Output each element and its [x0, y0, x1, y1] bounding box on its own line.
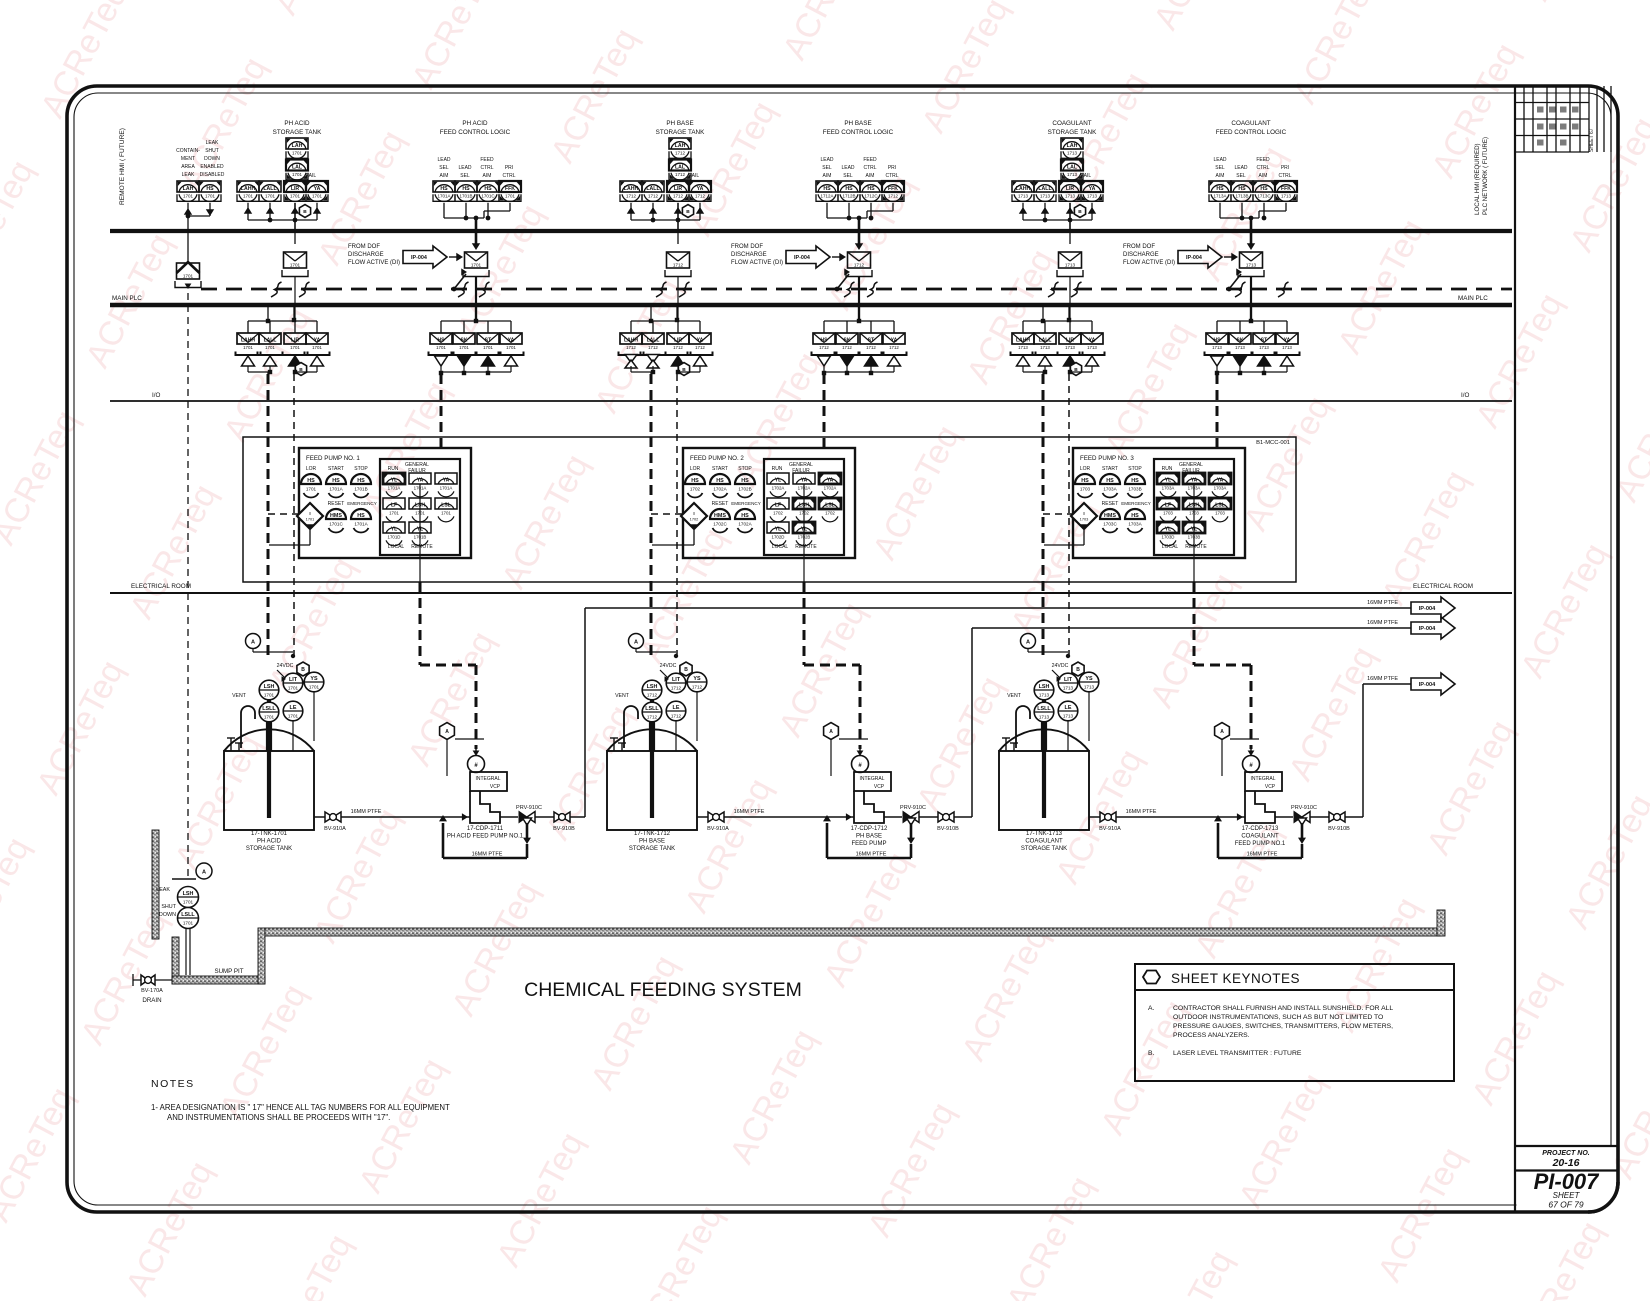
svg-text:1701: 1701	[264, 693, 275, 698]
svg-text:HS: HS	[1106, 478, 1114, 484]
svg-text:1701: 1701	[505, 194, 516, 199]
svg-text:YA: YA	[1191, 478, 1198, 484]
svg-text:FEED: FEED	[1256, 157, 1270, 163]
svg-text:EMERGENCY: EMERGENCY	[347, 501, 377, 506]
svg-text:1701A: 1701A	[437, 194, 450, 199]
svg-text:RUN: RUN	[772, 466, 783, 472]
svg-text:1713: 1713	[1087, 194, 1098, 199]
svg-text:LAHH: LAHH	[1016, 338, 1030, 344]
svg-text:1703D: 1703D	[1162, 534, 1175, 539]
svg-text:1703: 1703	[1163, 510, 1173, 515]
svg-text:LALL: LALL	[263, 186, 277, 192]
svg-text:HS: HS	[716, 478, 724, 484]
svg-text:LSLL: LSLL	[1037, 706, 1051, 712]
svg-text:1701: 1701	[436, 345, 446, 350]
svg-text:1701: 1701	[265, 194, 276, 199]
svg-text:YA: YA	[1089, 186, 1096, 192]
svg-text:LSH: LSH	[264, 684, 275, 690]
svg-text:IP-004: IP-004	[411, 255, 427, 261]
svg-text:A.: A.	[1148, 1005, 1155, 1012]
svg-text:START: START	[712, 466, 728, 472]
svg-text:HS: HS	[1260, 186, 1268, 192]
svg-text:LE: LE	[290, 705, 297, 711]
svg-text:RUN: RUN	[388, 466, 399, 472]
svg-text:SK: SK	[844, 338, 851, 344]
svg-text:LAH: LAH	[675, 143, 686, 149]
svg-text:START: START	[1102, 466, 1118, 472]
svg-text:1701: 1701	[205, 194, 216, 199]
svg-text:RUN: RUN	[1162, 466, 1173, 472]
svg-text:HS: HS	[438, 338, 446, 344]
svg-text:HS: HS	[206, 186, 214, 192]
svg-text:LSL: LSL	[1215, 503, 1224, 509]
svg-text:1702A: 1702A	[824, 485, 837, 490]
svg-text:YA: YA	[697, 338, 704, 344]
svg-text:LAH: LAH	[292, 143, 303, 149]
svg-text:PH ACID: PH ACID	[257, 839, 282, 845]
svg-text:A: A	[634, 640, 638, 646]
svg-text:1713: 1713	[1065, 194, 1076, 199]
svg-text:FEED CONTROL LOGIC: FEED CONTROL LOGIC	[440, 129, 511, 136]
svg-text:VENT: VENT	[615, 693, 630, 699]
svg-text:LAHH: LAHH	[1016, 186, 1031, 192]
svg-text:1701: 1701	[243, 345, 253, 350]
svg-text:HS: HS	[1131, 513, 1139, 519]
svg-text:LIR: LIR	[291, 338, 299, 344]
svg-text:1703A: 1703A	[1103, 487, 1117, 492]
svg-text:HS: HS	[821, 338, 829, 344]
svg-text:SEL: SEL	[843, 173, 853, 179]
svg-text:1712: 1712	[888, 194, 899, 199]
svg-text:LALL: LALL	[646, 186, 660, 192]
svg-text:LEAD: LEAD	[820, 157, 833, 163]
svg-text:A: A	[202, 870, 206, 876]
svg-text:B.: B.	[1148, 1050, 1155, 1057]
svg-text:LALL: LALL	[1039, 338, 1052, 344]
svg-text:1712: 1712	[648, 345, 658, 350]
svg-text:1701: 1701	[290, 262, 301, 267]
svg-text:I: I	[309, 511, 310, 516]
svg-text:YL: YL	[1165, 527, 1171, 533]
svg-text:FFK: FFK	[1281, 186, 1291, 192]
svg-text:HS: HS	[741, 513, 749, 519]
svg-text:1713: 1713	[1018, 194, 1029, 199]
svg-text:1712: 1712	[671, 686, 682, 691]
svg-text:BV-910A: BV-910A	[707, 826, 729, 832]
svg-text:VENT: VENT	[1007, 693, 1022, 699]
svg-text:STOP: STOP	[354, 466, 368, 472]
svg-text:CTRL: CTRL	[502, 173, 515, 179]
svg-text:PLC NETWORK ( FUTURE): PLC NETWORK ( FUTURE)	[1482, 137, 1489, 215]
svg-text:1713: 1713	[1259, 345, 1269, 350]
svg-text:1713: 1713	[1246, 262, 1257, 267]
svg-text:STOP: STOP	[738, 466, 752, 472]
svg-text:1701: 1701	[264, 715, 275, 720]
svg-text:FAIL: FAIL	[306, 173, 317, 179]
svg-text:1701: 1701	[243, 194, 254, 199]
svg-text:IP-004: IP-004	[794, 255, 810, 261]
svg-text:CTRL: CTRL	[1278, 173, 1291, 179]
svg-text:RESET: RESET	[1102, 501, 1119, 507]
svg-text:INTEGRAL: INTEGRAL	[475, 776, 500, 782]
svg-text:1712: 1712	[673, 345, 683, 350]
svg-text:1713: 1713	[1018, 345, 1028, 350]
svg-text:1701: 1701	[306, 517, 315, 522]
svg-text:LALL: LALL	[264, 338, 277, 344]
svg-text:PROJECT NO.: PROJECT NO.	[1542, 1150, 1590, 1157]
svg-text:HS: HS	[691, 478, 699, 484]
svg-text:LAHH: LAHH	[241, 186, 256, 192]
svg-text:I/O: I/O	[152, 392, 160, 399]
svg-text:B1-MCC-001: B1-MCC-001	[1256, 440, 1290, 446]
svg-text:PRI: PRI	[1281, 165, 1289, 171]
svg-text:1703: 1703	[1080, 487, 1091, 492]
svg-text:1713: 1713	[1087, 345, 1097, 350]
svg-text:1702: 1702	[773, 510, 783, 515]
svg-text:FEED CONTROL LOGIC: FEED CONTROL LOGIC	[823, 129, 894, 136]
svg-text:YA: YA	[443, 478, 450, 484]
svg-text:1701: 1701	[306, 487, 317, 492]
svg-text:VCP: VCP	[490, 784, 501, 790]
svg-text:1703: 1703	[1215, 510, 1225, 515]
svg-text:1703B: 1703B	[1128, 487, 1141, 492]
svg-text:1701: 1701	[183, 900, 194, 905]
svg-text:LSH: LSH	[183, 891, 194, 897]
svg-text:IP-004: IP-004	[1419, 682, 1436, 688]
svg-text:ST: ST	[1261, 338, 1267, 344]
svg-text:HS: HS	[867, 186, 875, 192]
svg-text:1712: 1712	[671, 714, 682, 719]
svg-text:1713: 1713	[1067, 151, 1078, 156]
svg-text:LIR: LIR	[291, 186, 300, 192]
svg-text:1701A: 1701A	[388, 485, 401, 490]
svg-text:YL: YL	[775, 527, 781, 533]
svg-text:1703A: 1703A	[1128, 522, 1142, 527]
svg-text:1702: 1702	[690, 517, 699, 522]
svg-text:HS: HS	[845, 186, 853, 192]
svg-text:PH BASE: PH BASE	[666, 120, 693, 127]
svg-text:EMERGENCY: EMERGENCY	[731, 501, 761, 506]
svg-text:1703: 1703	[1080, 517, 1089, 522]
svg-text:YA: YA	[827, 478, 834, 484]
svg-text:1712: 1712	[819, 345, 829, 350]
svg-text:1701: 1701	[389, 510, 399, 515]
svg-text:PRESSURE GAUGES, SWITCHES, TRA: PRESSURE GAUGES, SWITCHES, TRANSMITTERS,…	[1173, 1023, 1393, 1030]
svg-text:HS: HS	[741, 478, 749, 484]
svg-text:SK: SK	[1237, 338, 1244, 344]
svg-text:RESET: RESET	[328, 501, 345, 507]
svg-text:YL: YL	[391, 478, 397, 484]
svg-text:COAGULANT: COAGULANT	[1241, 834, 1279, 840]
svg-text:STORAGE TANK: STORAGE TANK	[273, 129, 322, 136]
svg-text:ST: ST	[485, 338, 491, 344]
svg-text:PH BASE: PH BASE	[639, 839, 665, 845]
svg-text:CTRL: CTRL	[885, 173, 898, 179]
svg-text:24VDC: 24VDC	[277, 663, 294, 669]
svg-text:HS: HS	[332, 478, 340, 484]
svg-text:HS: HS	[823, 186, 831, 192]
svg-text:STORAGE TANK: STORAGE TANK	[246, 846, 292, 852]
svg-text:BV-170A: BV-170A	[141, 988, 163, 994]
svg-text:DOWN: DOWN	[159, 912, 176, 918]
svg-text:HMS: HMS	[1104, 513, 1116, 519]
svg-text:1702: 1702	[825, 510, 835, 515]
svg-text:1702B: 1702B	[738, 487, 751, 492]
svg-text:HS: HS	[357, 513, 365, 519]
svg-text:START: START	[328, 466, 344, 472]
svg-text:PH ACID: PH ACID	[462, 120, 488, 127]
svg-text:BV-910B: BV-910B	[937, 826, 959, 832]
svg-text:1713: 1713	[1065, 262, 1076, 267]
svg-text:1701: 1701	[292, 151, 303, 156]
svg-text:1712: 1712	[675, 172, 686, 177]
svg-text:1713: 1713	[1040, 345, 1050, 350]
svg-text:B: B	[303, 209, 307, 215]
svg-text:AIM: AIM	[866, 173, 875, 179]
svg-text:REMOTE: REMOTE	[1185, 544, 1207, 550]
svg-text:SHEET 67: SHEET 67	[1589, 128, 1595, 152]
svg-text:16MM PTFE: 16MM PTFE	[1367, 600, 1398, 606]
svg-text:1712: 1712	[673, 262, 684, 267]
svg-text:1701: 1701	[290, 194, 301, 199]
svg-text:VCP: VCP	[1265, 784, 1276, 790]
svg-text:VENT: VENT	[232, 693, 247, 699]
svg-text:1713: 1713	[1084, 685, 1095, 690]
svg-text:PH BASE: PH BASE	[844, 120, 871, 127]
svg-text:1701: 1701	[183, 273, 194, 278]
svg-text:LSL: LSL	[441, 503, 450, 509]
svg-text:1703A: 1703A	[1214, 485, 1227, 490]
svg-text:1702A: 1702A	[772, 485, 785, 490]
svg-text:STORAGE TANK: STORAGE TANK	[656, 129, 705, 136]
svg-text:IP-004: IP-004	[1186, 255, 1202, 261]
svg-text:16MM PTFE: 16MM PTFE	[351, 809, 382, 815]
svg-text:1712: 1712	[647, 715, 658, 720]
svg-text:BV-910B: BV-910B	[553, 826, 575, 832]
svg-text:LALL: LALL	[647, 338, 660, 344]
svg-text:SUMP PIT: SUMP PIT	[214, 968, 243, 975]
svg-text:AND INSTRUMENTATIONS SHALL BE: AND INSTRUMENTATIONS SHALL BE PROCEEDS W…	[167, 1113, 390, 1122]
svg-text:LF: LF	[391, 503, 397, 509]
svg-text:LIR: LIR	[1066, 186, 1075, 192]
svg-text:LSH: LSH	[647, 684, 658, 690]
svg-text:EMERGENCY: EMERGENCY	[1121, 501, 1151, 506]
svg-text:A: A	[1026, 640, 1030, 646]
svg-text:1713: 1713	[1235, 345, 1245, 350]
svg-text:FFK: FFK	[505, 186, 515, 192]
svg-text:1701: 1701	[288, 714, 299, 719]
svg-text:1701D: 1701D	[388, 534, 401, 539]
svg-text:1701: 1701	[483, 345, 493, 350]
svg-text:SK: SK	[461, 338, 468, 344]
svg-text:LAL: LAL	[675, 165, 686, 171]
svg-text:1701: 1701	[506, 345, 516, 350]
svg-text:LEAD: LEAD	[1213, 157, 1226, 163]
svg-text:1701: 1701	[183, 194, 194, 199]
svg-text:1713: 1713	[1282, 345, 1292, 350]
svg-text:INTEGRAL: INTEGRAL	[859, 776, 884, 782]
svg-text:1713: 1713	[1039, 693, 1050, 698]
svg-text:16MM PTFE: 16MM PTFE	[1126, 809, 1157, 815]
svg-text:1703A: 1703A	[1162, 485, 1175, 490]
svg-text:BV-910A: BV-910A	[1099, 826, 1121, 832]
svg-text:HMS: HMS	[330, 513, 342, 519]
svg-text:LOR: LOR	[690, 466, 701, 472]
svg-text:SHUT: SHUT	[205, 148, 219, 154]
svg-text:SEL: SEL	[439, 165, 449, 171]
svg-text:1712C: 1712C	[864, 194, 878, 199]
svg-text:LEAD: LEAD	[1234, 165, 1247, 171]
svg-text:MAIN PLC: MAIN PLC	[1458, 295, 1488, 302]
svg-text:ELECTRICAL ROOM: ELECTRICAL ROOM	[131, 583, 191, 590]
svg-text:LOCAL: LOCAL	[772, 544, 789, 550]
svg-text:LEAD: LEAD	[841, 165, 854, 171]
svg-text:LIR: LIR	[674, 338, 682, 344]
svg-text:FLOW ACTIVE (DI): FLOW ACTIVE (DI)	[731, 260, 783, 266]
svg-text:MENT: MENT	[181, 156, 195, 162]
svg-text:HS: HS	[1214, 338, 1222, 344]
svg-text:1713C: 1713C	[1257, 194, 1271, 199]
svg-text:1702A: 1702A	[738, 522, 752, 527]
svg-text:RESET: RESET	[712, 501, 729, 507]
svg-text:PRV-910C: PRV-910C	[1291, 805, 1317, 811]
svg-text:PH ACID FEED PUMP NO.1: PH ACID FEED PUMP NO.1	[447, 834, 524, 840]
svg-text:1701: 1701	[265, 345, 275, 350]
svg-text:1701: 1701	[312, 345, 322, 350]
svg-text:CTRL: CTRL	[863, 165, 876, 171]
svg-text:1712: 1712	[626, 345, 636, 350]
svg-text:FROM DOF: FROM DOF	[348, 244, 380, 250]
svg-text:PH ACID: PH ACID	[284, 120, 310, 127]
svg-text:YL: YL	[775, 478, 781, 484]
svg-text:YA: YA	[508, 338, 515, 344]
svg-text:1702D: 1702D	[772, 534, 785, 539]
svg-text:1712: 1712	[695, 194, 706, 199]
svg-text:16MM PTFE: 16MM PTFE	[1367, 676, 1398, 682]
svg-text:FROM DOF: FROM DOF	[1123, 244, 1155, 250]
svg-text:1712B: 1712B	[842, 194, 855, 199]
svg-text:1713: 1713	[1039, 715, 1050, 720]
svg-text:LOCAL: LOCAL	[1162, 544, 1179, 550]
svg-text:STOP: STOP	[1128, 466, 1142, 472]
svg-text:YA: YA	[1089, 338, 1096, 344]
svg-text:1712: 1712	[675, 151, 686, 156]
svg-text:LSH: LSH	[1039, 684, 1050, 690]
svg-text:B: B	[1078, 209, 1082, 215]
svg-text:BV-910A: BV-910A	[324, 826, 346, 832]
svg-text:B: B	[301, 667, 305, 673]
svg-text:LIT: LIT	[1064, 677, 1073, 683]
svg-text:1701: 1701	[183, 921, 194, 926]
svg-text:FEED PUMP NO. 1: FEED PUMP NO. 1	[306, 455, 360, 462]
svg-text:LAHH: LAHH	[624, 338, 638, 344]
svg-text:A: A	[829, 729, 833, 735]
svg-text:MAIN PLC: MAIN PLC	[112, 295, 142, 302]
svg-text:1712: 1712	[866, 345, 876, 350]
svg-text:LF: LF	[775, 503, 781, 509]
svg-text:LEAD: LEAD	[437, 157, 450, 163]
svg-text:PRI: PRI	[505, 165, 513, 171]
svg-text:1713: 1713	[1065, 345, 1075, 350]
svg-text:AIM: AIM	[823, 173, 832, 179]
svg-text:FAIL: FAIL	[1081, 173, 1092, 179]
svg-text:LEAD: LEAD	[458, 165, 471, 171]
svg-text:LSLL: LSLL	[181, 912, 195, 918]
svg-text:CHEMICAL FEEDING SYSTEM: CHEMICAL FEEDING SYSTEM	[524, 979, 802, 1001]
svg-text:1701: 1701	[312, 194, 323, 199]
svg-text:FEED PUMP NO. 3: FEED PUMP NO. 3	[1080, 455, 1134, 462]
svg-text:YA: YA	[1217, 478, 1224, 484]
svg-text:CTRL: CTRL	[480, 165, 493, 171]
svg-text:17-CDP-1712: 17-CDP-1712	[851, 826, 888, 832]
svg-text:1712: 1712	[647, 693, 658, 698]
svg-text:LASER LEVEL TRANSMITTER : FUTU: LASER LEVEL TRANSMITTER : FUTURE	[1173, 1050, 1302, 1057]
svg-text:LOR: LOR	[1080, 466, 1091, 472]
svg-text:HS: HS	[440, 186, 448, 192]
svg-text:CONTRACTOR SHALL FURNISH AND I: CONTRACTOR SHALL FURNISH AND INSTALL SUN…	[1173, 1005, 1393, 1012]
svg-text:A: A	[445, 729, 449, 735]
svg-text:1701: 1701	[292, 172, 303, 177]
svg-text:LEAK: LEAK	[206, 140, 219, 146]
svg-text:DISABLED: DISABLED	[200, 172, 225, 178]
svg-text:1713A: 1713A	[1213, 194, 1226, 199]
svg-text:ST: ST	[868, 338, 874, 344]
svg-text:17-CDP-1711: 17-CDP-1711	[467, 826, 504, 832]
svg-text:1713: 1713	[1067, 172, 1078, 177]
svg-text:AIM: AIM	[483, 173, 492, 179]
svg-text:PRV-910C: PRV-910C	[900, 805, 926, 811]
svg-text:LF: LF	[1165, 503, 1171, 509]
svg-text:FLOW ACTIVE (DI): FLOW ACTIVE (DI)	[1123, 260, 1175, 266]
svg-text:LIT: LIT	[289, 677, 298, 683]
svg-text:ELECTRICAL ROOM: ELECTRICAL ROOM	[1413, 583, 1473, 590]
svg-text:IP-004: IP-004	[1419, 606, 1436, 612]
svg-text:17-CDP-1713: 17-CDP-1713	[1242, 826, 1279, 832]
svg-text:REMOTE: REMOTE	[795, 544, 817, 550]
svg-text:COAGULANT: COAGULANT	[1231, 120, 1270, 127]
svg-text:LEAK: LEAK	[182, 172, 195, 178]
svg-text:16MM PTFE: 16MM PTFE	[1247, 852, 1278, 858]
svg-text:COAGULANT: COAGULANT	[1025, 839, 1063, 845]
svg-text:24VDC: 24VDC	[660, 663, 677, 669]
svg-text:1712: 1712	[842, 345, 852, 350]
svg-text:YA: YA	[891, 338, 898, 344]
svg-text:67 OF 79: 67 OF 79	[1548, 1200, 1584, 1210]
svg-text:BV-910B: BV-910B	[1328, 826, 1350, 832]
svg-text:1701: 1701	[309, 685, 320, 690]
svg-text:NOTES: NOTES	[151, 1078, 195, 1090]
svg-text:1712: 1712	[648, 194, 659, 199]
svg-text:LSLL: LSLL	[262, 706, 276, 712]
svg-text:1702C: 1702C	[713, 522, 727, 527]
svg-text:STORAGE TANK: STORAGE TANK	[629, 846, 675, 852]
svg-text:B: B	[684, 667, 688, 673]
svg-text:YA: YA	[1284, 338, 1291, 344]
svg-text:1701: 1701	[288, 686, 299, 691]
svg-text:YL: YL	[1165, 478, 1171, 484]
svg-text:DRAIN: DRAIN	[142, 997, 161, 1004]
svg-text:1701: 1701	[459, 345, 469, 350]
svg-text:PRV-910C: PRV-910C	[516, 805, 542, 811]
svg-text:LSL: LSL	[825, 503, 834, 509]
svg-text:I: I	[1083, 511, 1084, 516]
svg-text:CTRL: CTRL	[1256, 165, 1269, 171]
svg-text:16MM PTFE: 16MM PTFE	[856, 852, 887, 858]
svg-text:DOWN: DOWN	[204, 156, 220, 162]
svg-text:LEAK: LEAK	[156, 887, 170, 893]
svg-text:AREA: AREA	[181, 164, 195, 170]
svg-text:17-TNK-1712: 17-TNK-1712	[634, 831, 671, 837]
